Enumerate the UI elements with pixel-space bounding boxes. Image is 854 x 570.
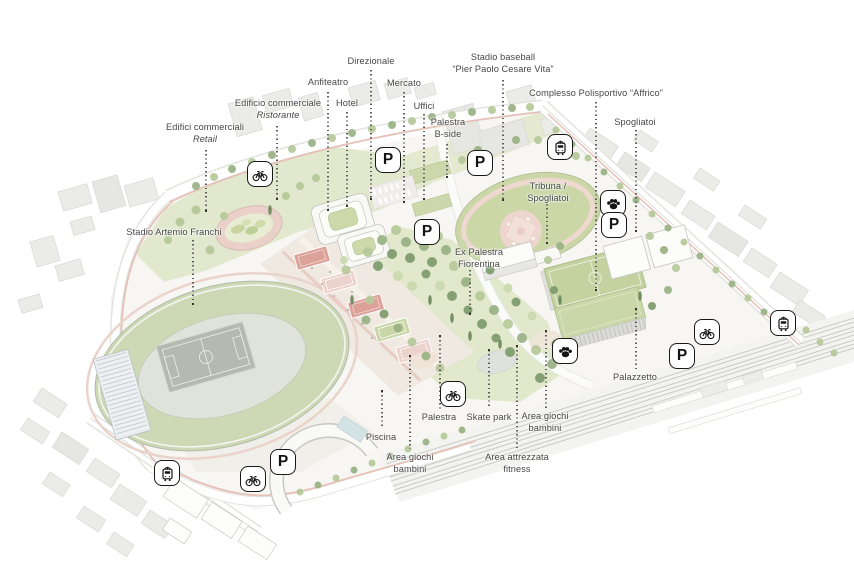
label-line: bambini [386,463,433,475]
parking-badge: P [601,212,627,238]
bicycle-badge [694,319,720,345]
label-line: Anfiteatro [308,76,348,88]
label-line: Hotel [336,97,358,109]
label-line: Area giochi [521,410,568,422]
bicycle-badge [240,466,266,492]
leader-line [546,204,547,243]
leader-line [346,112,347,206]
parking-letter: P [475,155,485,172]
leader-endpoint-dot [346,205,349,208]
tram-badge [770,310,796,336]
label-stadio-baseball: Stadio baseball“Pier Paolo Cesare Vita” [452,51,553,75]
tram-icon [159,465,176,482]
tram-badge [547,134,573,160]
label-line: Stadio baseball [452,51,553,63]
label-hotel: Hotel [336,97,358,109]
label-line: Fiorentina [455,258,503,270]
leader-line [192,240,193,304]
tram-icon [552,139,569,156]
leader-line [516,346,517,449]
label-line: bambini [521,422,568,434]
label-tribuna-spogliatoi: Tribuna /Spogliatoi [527,180,568,204]
label-line: Skate park [467,411,512,423]
label-spogliatoi-nord: Spogliatoi [614,116,655,128]
leader-line [276,126,277,199]
leader-line [409,356,410,449]
label-line: Spogliatoi [614,116,655,128]
bicycle-badge [440,381,466,407]
label-line: Uffici [414,100,435,112]
label-line: Ex Palestra [455,246,503,258]
label-line: Area attrezzata [485,451,549,463]
label-line: Edifici commerciali [166,121,244,133]
label-line: Complesso Polisportivo “Affrico” [529,87,663,99]
label-uffici: Uffici [414,100,435,112]
leader-endpoint-dot [469,313,472,316]
leader-line [635,130,636,231]
label-line: Direzionale [347,55,394,67]
paw-icon [605,195,622,212]
parking-badge: P [467,150,493,176]
leader-endpoint-dot [446,176,449,179]
label-ex-palestra-fiorentina: Ex PalestraFiorentina [455,246,503,270]
leader-endpoint-dot [516,345,519,348]
label-line: fitness [485,463,549,475]
leader-endpoint-dot [635,230,638,233]
leader-line [488,350,489,409]
leader-endpoint-dot [409,355,412,358]
label-line: Area giochi [386,451,433,463]
leader-endpoint-dot [502,199,505,202]
leader-line [327,92,328,210]
leader-endpoint-dot [423,198,426,201]
paw-icon [557,343,574,360]
leader-endpoint-dot [439,335,442,338]
label-line: Edificio commerciale [235,97,321,109]
leader-endpoint-dot [327,209,330,212]
masterplan-canvas: Edifici commercialiRetailEdificio commer… [0,0,854,570]
label-line: B-side [431,128,466,140]
leader-endpoint-dot [276,198,279,201]
leader-line [469,270,470,314]
label-line: Ristorante [235,109,321,121]
bicycle-icon [444,386,462,403]
leader-endpoint-dot [488,349,491,352]
parking-badge: P [669,343,695,369]
label-line: Palazzetto [613,371,657,383]
label-area-giochi-bambini-est: Area giochibambini [521,410,568,434]
bicycle-icon [698,324,716,341]
parking-badge: P [270,449,296,475]
leader-endpoint-dot [381,390,384,393]
label-edificio-commerciale-ristorante: Edificio commercialeRistorante [235,97,321,121]
label-area-giochi-bambini-ovest: Area giochibambini [386,451,433,475]
leader-line [502,80,503,200]
leader-line [423,114,424,199]
leader-line [205,150,206,211]
leader-endpoint-dot [370,198,373,201]
parking-letter: P [677,348,687,365]
leader-endpoint-dot [545,330,548,333]
dog-area-badge [552,338,578,364]
leader-endpoint-dot [205,210,208,213]
label-line: Palestra [431,116,466,128]
parking-letter: P [609,217,619,234]
parking-letter: P [422,224,432,241]
tram-icon [775,315,792,332]
label-anfiteatro: Anfiteatro [308,76,348,88]
label-line: Piscina [366,431,396,443]
label-area-attrezzata-fitness: Area attrezzatafitness [485,451,549,475]
label-palestra: Palestra [422,411,457,423]
leader-line [370,70,371,199]
label-mercato: Mercato [387,77,421,89]
bicycle-badge [247,161,273,187]
label-line: “Pier Paolo Cesare Vita” [452,63,553,75]
leader-line [545,331,546,408]
label-line: Spogliatoi [527,192,568,204]
leader-endpoint-dot [192,303,195,306]
parking-letter: P [383,152,393,169]
leader-endpoint-dot [635,308,638,311]
label-line: Palestra [422,411,457,423]
parking-badge: P [375,147,401,173]
label-stadio-artemio-franchi: Stadio Artemio Franchi [126,226,221,238]
label-direzionale: Direzionale [347,55,394,67]
leader-endpoint-dot [546,242,549,245]
label-palazzetto: Palazzetto [613,371,657,383]
tram-badge [154,460,180,486]
label-edifici-commerciali-retail: Edifici commercialiRetail [166,121,244,145]
annotation-layer: Edifici commercialiRetailEdificio commer… [0,0,854,570]
label-complesso-polisportivo-affrico: Complesso Polisportivo “Affrico” [529,87,663,99]
leader-line [595,102,596,290]
label-line: Tribuna / [527,180,568,192]
label-line: Retail [166,133,244,145]
bicycle-icon [251,166,269,183]
leader-endpoint-dot [595,289,598,292]
leader-line [403,92,404,202]
leader-line [381,391,382,429]
label-skate-park: Skate park [467,411,512,423]
label-line: Stadio Artemio Franchi [126,226,221,238]
parking-letter: P [278,454,288,471]
bicycle-icon [244,471,262,488]
leader-line [635,309,636,369]
label-palestra-b-side: PalestraB-side [431,116,466,140]
label-line: Mercato [387,77,421,89]
parking-badge: P [414,219,440,245]
leader-line [446,144,447,177]
label-piscina: Piscina [366,431,396,443]
leader-endpoint-dot [403,201,406,204]
